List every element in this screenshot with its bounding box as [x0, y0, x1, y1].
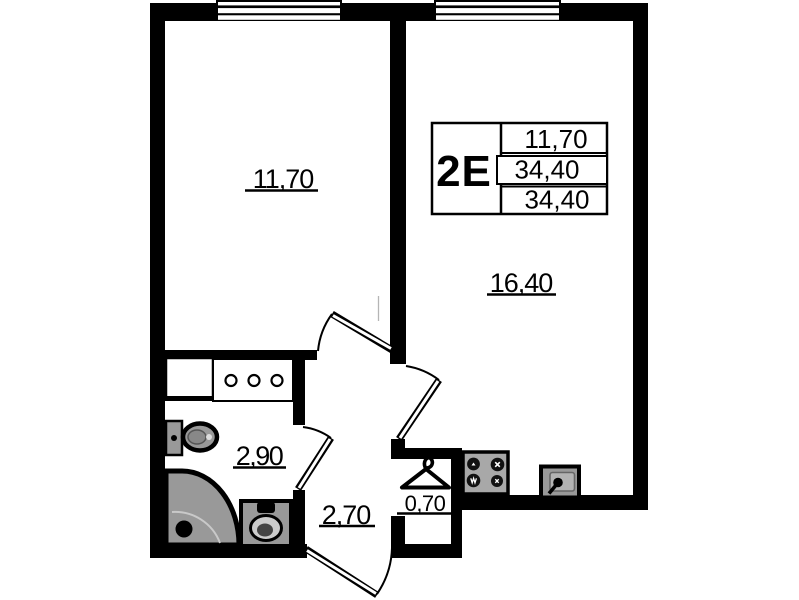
svg-text:34,40: 34,40 — [524, 185, 589, 215]
svg-text:2E: 2E — [436, 147, 492, 196]
svg-text:11,70: 11,70 — [524, 124, 587, 154]
svg-text:34,40: 34,40 — [514, 155, 579, 185]
